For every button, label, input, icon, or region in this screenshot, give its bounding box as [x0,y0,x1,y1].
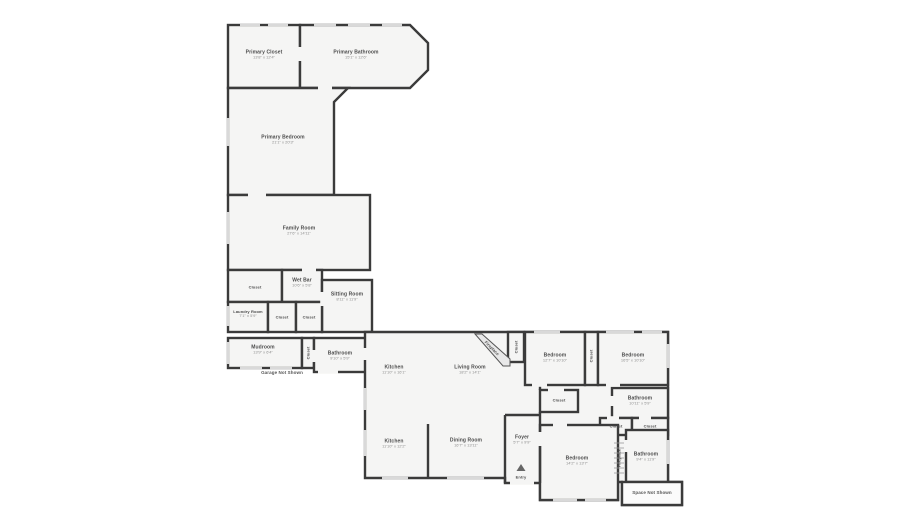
room-floor-bedroom-right [598,332,668,385]
room-floor-wet-bar [282,270,322,302]
room-floor-primary-bathroom [300,25,428,88]
room-floor-closet-b [296,302,322,332]
room-floor-laundry [228,302,268,332]
room-floor-primary-bedroom [228,88,348,195]
room-floor-fireplace-closet [508,332,524,362]
room-floor-sitting-room [322,280,372,332]
room-floor-mud-bathroom [314,338,366,372]
room-floor-bedroom-mid [525,332,585,385]
room-floor-primary-closet [228,25,300,88]
room-floor-closet-wetbar [228,270,282,302]
room-floor-closet-a [268,302,296,332]
floor-plan: Primary Closet 13'8" x 12'4" Primary Bat… [0,0,900,529]
room-floor-bathroom-mid [612,388,668,418]
room-floor-bathroom-br [626,430,668,482]
room-floor-closet-mid [585,332,598,385]
floorplan-canvas [0,0,900,529]
rooms-layer [228,25,682,505]
room-floor-family-room [228,195,370,270]
room-floor-closet-living [540,390,578,412]
room-floor-mudroom [228,338,302,368]
room-floor-bedroom-br [540,425,618,500]
room-floor-space-not-shown [622,482,682,505]
